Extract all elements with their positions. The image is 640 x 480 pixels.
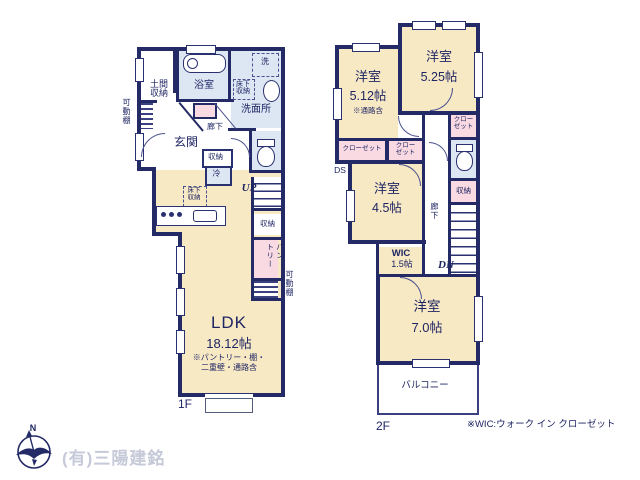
bedroom-512-note: ※通路含 [342,107,394,115]
doma-storage-label: 土間収納 [143,80,175,99]
wall [422,111,425,277]
balcony-label: バルコニー [388,381,462,391]
balcony-wall [377,413,479,415]
terrace [205,398,253,413]
window [352,43,380,52]
window [474,296,483,342]
window [135,58,144,82]
refrigerator-label: 冷 [206,170,227,178]
hall-closet [193,103,217,119]
window [176,288,185,316]
washer-label: 洗 [259,58,271,66]
wic-footnote: ※WIC:ウォーク イン クローゼット [467,420,637,430]
bedroom-70-name: 洋室 [404,300,450,314]
balcony-door-window [412,359,450,368]
bathroom-label: 浴室 [188,81,220,92]
bathtub-drain [187,58,198,69]
pantry-label: パントリー [265,243,285,269]
bedroom-70 [380,277,476,361]
door-arc-toilet-2f [429,142,448,161]
corridor-label-1f: 廊下 [201,123,229,131]
door-arc-512 [398,116,419,137]
window [176,246,185,274]
underfloor-b-label: 床下収納 [184,188,204,202]
bedroom-525-size: 5.25帖 [412,71,466,84]
stairs-down-label: DN [435,260,457,272]
window [186,45,216,54]
window [442,21,466,30]
toilet-door-arc [231,138,250,157]
corridor-label-2f: 廊下 [430,202,438,220]
closet-b-label: クローゼット [389,143,422,157]
bedroom-45-name: 洋室 [365,182,409,196]
company-name: (有)三陽建銘 [62,444,165,469]
window [474,52,483,98]
wall [335,138,425,141]
wall [376,244,379,277]
ldk-size-label: 18.12帖 [189,337,269,351]
movable-shelf-left [141,103,153,129]
closet-c-label: クローゼット [451,117,476,131]
wall [448,178,480,181]
ldk-note2-label: 二重壁・通路含 [187,364,271,372]
wall [251,208,281,211]
entrance-label: 玄関 [168,136,204,149]
wall [398,23,402,115]
window [176,330,185,354]
floor1-label: 1F [172,398,198,411]
movable-shelf-left-label: 可動棚 [122,98,130,125]
ldk-name-label: LDK [194,314,264,332]
bedroom-512-name: 洋室 [344,70,392,84]
hall-storage-label: 収納 [202,153,229,161]
kitchen-sink-icon [193,210,217,222]
wall [448,137,480,140]
wall [281,47,285,397]
wic-name-label: WIC [381,249,421,259]
floor2-label: 2F [370,420,396,433]
wall [348,240,426,244]
wall [228,47,231,102]
wall [176,47,179,102]
entrance-door-arc [141,133,165,157]
window [412,21,436,30]
compass-n-label: N [27,424,39,433]
bathtub-icon [183,54,226,73]
bedroom-70-size: 7.0帖 [402,321,452,335]
compass-bird-tail [32,459,37,466]
sink-icon [263,80,280,102]
wall [398,111,480,115]
stove-burner-icon [161,212,166,217]
storage-2f-label: 収納 [451,187,476,195]
toilet-bowl-2f [456,151,473,171]
ds-label: DS [331,166,349,175]
bedroom-45-size: 4.5帖 [365,202,409,215]
washroom-label: 洗面所 [231,105,281,116]
stairs-storage-label: 収納 [254,220,281,228]
movable-shelf-right [254,281,278,298]
movable-shelf-right-label: 可動棚 [285,270,293,297]
balcony-wall [477,365,479,415]
bedroom-525-name: 洋室 [415,50,463,64]
closet-a-label: クローゼット [341,146,383,153]
bedroom-512-size: 5.12帖 [340,90,396,103]
wall [249,170,285,173]
toilet-bowl-1f [257,146,275,167]
floorplan-canvas: 土間収納 可動棚 浴室 洗 床下収納 洗面所 玄関 廊下 収納 冷 床下収納 U… [0,0,640,480]
wall [176,99,234,102]
stove-burner-icon [177,212,182,217]
wall [251,298,281,301]
stairs-up-label: UP [238,183,260,195]
wall [448,274,480,277]
kitchen-counter [156,206,226,226]
window [346,190,355,222]
ldk-note1-label: ※パントリー・棚・ [187,354,271,362]
wall [376,274,380,365]
wic-size-label: 1.5帖 [382,260,422,269]
wall [398,23,480,27]
underfloor-a-label: 床下収納 [234,81,252,96]
stove-burner-icon [169,212,174,217]
balcony-wall [377,365,379,415]
